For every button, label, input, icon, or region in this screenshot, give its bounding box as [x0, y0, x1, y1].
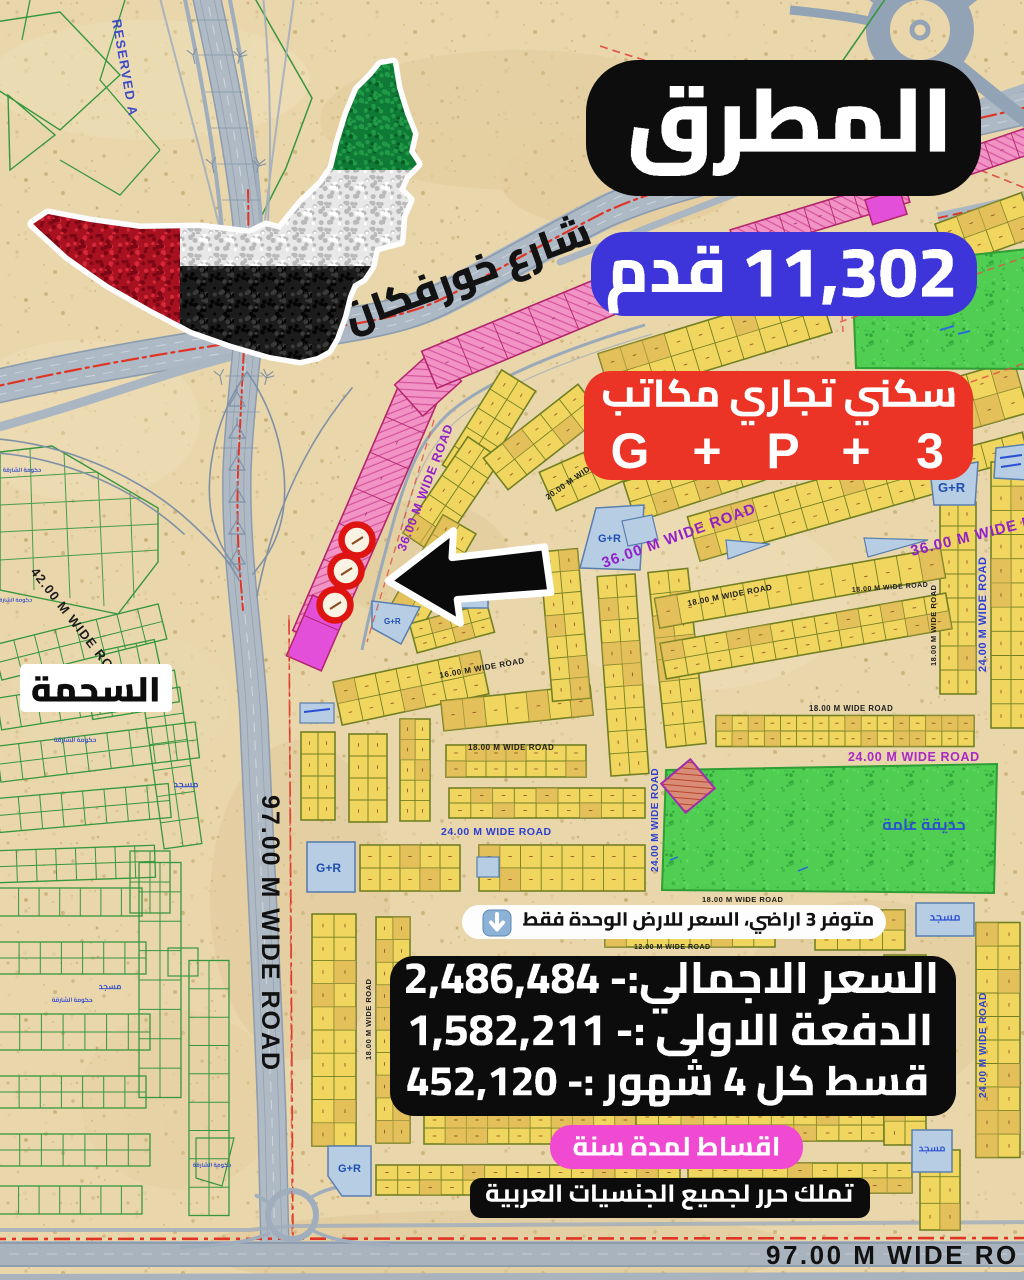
svg-text:24.00 M WIDE ROAD: 24.00 M WIDE ROAD: [650, 768, 661, 872]
svg-text:+: +: [692, 423, 721, 479]
svg-text:18.00 M WIDE ROAD: 18.00 M WIDE ROAD: [702, 895, 784, 904]
svg-text:G+R: G+R: [598, 533, 621, 545]
svg-text:24.00 M WIDE ROAD: 24.00 M WIDE ROAD: [978, 992, 989, 1098]
svg-text:G+R: G+R: [338, 1163, 361, 1175]
svg-text:97.00 M WIDE ROAD: 97.00 M WIDE ROAD: [256, 795, 284, 1072]
svg-text:G+R: G+R: [938, 480, 966, 495]
svg-text:+: +: [841, 423, 870, 479]
svg-text:3: 3: [916, 423, 944, 479]
svg-text:24.00 M WIDE ROAD: 24.00 M WIDE ROAD: [848, 750, 980, 764]
svg-text:G+R: G+R: [316, 861, 341, 875]
svg-text:P: P: [766, 423, 799, 479]
svg-text:24.00 M WIDE ROAD: 24.00 M WIDE ROAD: [977, 557, 989, 672]
svg-text:18.00 M WIDE ROAD: 18.00 M WIDE ROAD: [364, 978, 373, 1060]
svg-text:97.00 M WIDE RO: 97.00 M WIDE RO: [766, 1240, 1019, 1270]
svg-text:18.00 M WIDE ROAD: 18.00 M WIDE ROAD: [468, 743, 554, 752]
svg-text:24.00 M WIDE ROAD: 24.00 M WIDE ROAD: [441, 826, 552, 838]
svg-text:18.00 M WIDE ROAD: 18.00 M WIDE ROAD: [929, 584, 938, 666]
svg-text:12.00 M WIDE ROAD: 12.00 M WIDE ROAD: [634, 944, 711, 951]
svg-text:G+R: G+R: [384, 617, 401, 626]
svg-text:G: G: [611, 423, 650, 479]
svg-text:18.00 M WIDE ROAD: 18.00 M WIDE ROAD: [809, 704, 893, 713]
